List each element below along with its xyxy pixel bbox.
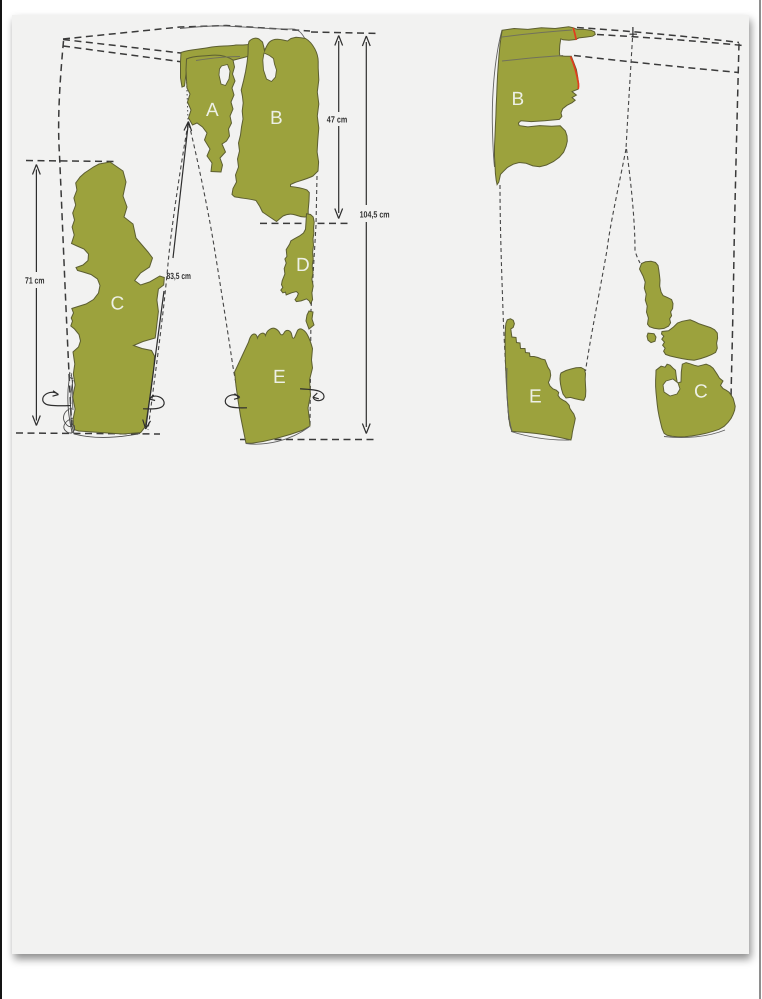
- svg-text:E: E: [529, 387, 542, 408]
- svg-text:104,5 cm: 104,5 cm: [360, 209, 390, 219]
- svg-text:E: E: [273, 367, 286, 388]
- svg-text:B: B: [270, 108, 283, 129]
- svg-text:B: B: [512, 89, 525, 110]
- svg-text:47 cm: 47 cm: [327, 115, 348, 125]
- svg-text:83,5 cm: 83,5 cm: [167, 271, 192, 281]
- svg-text:C: C: [111, 294, 125, 315]
- svg-text:D: D: [296, 255, 310, 276]
- svg-text:C: C: [694, 382, 708, 403]
- svg-text:A: A: [206, 100, 219, 121]
- svg-text:71 cm: 71 cm: [25, 276, 45, 286]
